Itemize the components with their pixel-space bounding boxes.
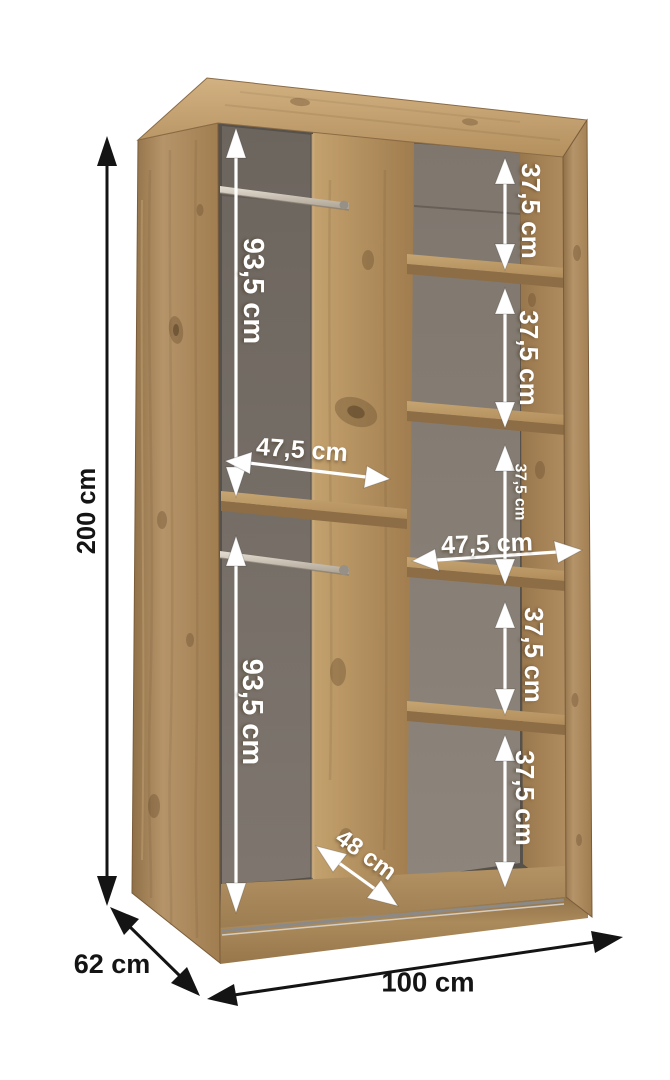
wood-knot: [148, 794, 160, 818]
wood-knot: [330, 658, 346, 686]
bottom-hanging-label: 93,5 cm: [236, 659, 268, 765]
wood-knot-core: [173, 324, 179, 336]
wood-knot: [157, 511, 167, 529]
wood-knot: [362, 250, 374, 270]
width-dimension-label: 100 cm: [381, 967, 474, 998]
wood-knot: [576, 834, 582, 846]
wood-knot: [528, 293, 536, 307]
shelf-gap-5-label: 37,5 cm: [510, 750, 540, 845]
arrowhead-down-icon: [97, 876, 117, 906]
wood-knot: [186, 633, 194, 647]
wood-knot: [535, 461, 545, 479]
arrowhead-left-icon: [207, 984, 238, 1006]
shelf-gap-4-label: 37,5 cm: [519, 607, 549, 702]
top-hanging-label: 93,5 cm: [237, 238, 269, 344]
wood-knot: [573, 245, 581, 261]
height-dimension-label: 200 cm: [73, 468, 101, 555]
shelf-gap-3-label: 37,5 cm: [512, 464, 529, 521]
rail-bracket: [339, 565, 349, 575]
shelf-gap-2-label: 37,5 cm: [514, 310, 544, 405]
wood-knot: [572, 693, 579, 707]
wood-knot: [197, 204, 204, 216]
right-side-panel-front: [563, 120, 592, 917]
depth-dimension-label: 62 cm: [74, 949, 151, 979]
left-side-panel: [132, 123, 220, 963]
wardrobe-dimension-diagram: 200 cm 62 cm 100 cm 93,5 cm: [0, 0, 670, 1080]
height-dimension: 200 cm: [73, 136, 117, 906]
rail-bracket: [340, 201, 349, 210]
arrowhead-up-icon: [97, 136, 117, 166]
shelf-gap-1-label: 37,5 cm: [516, 163, 546, 258]
diagram-canvas: 200 cm 62 cm 100 cm 93,5 cm: [0, 0, 670, 1080]
arrowhead-right-icon: [591, 931, 623, 953]
right-width-label: 47,5 cm: [441, 528, 534, 559]
